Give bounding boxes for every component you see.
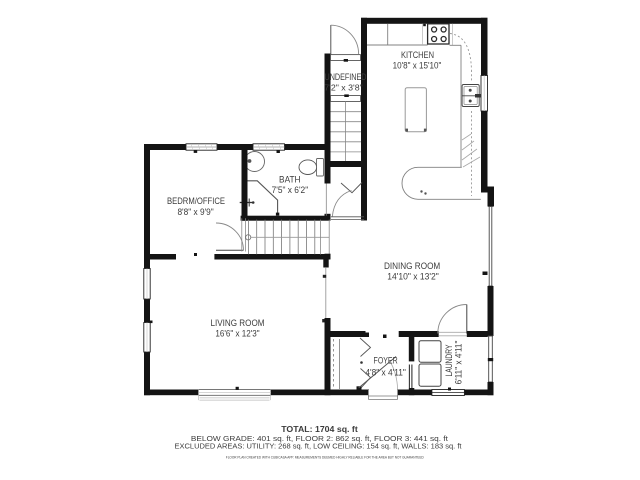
- svg-text:EXCLUDED AREAS: UTILITY: 268 s: EXCLUDED AREAS: UTILITY: 268 sq. ft, LOW…: [175, 442, 463, 451]
- svg-text:7'2" x 3'8": 7'2" x 3'8": [324, 82, 363, 92]
- svg-text:UNDEFINED: UNDEFINED: [325, 72, 367, 82]
- svg-text:6'11" x 4'11": 6'11" x 4'11": [454, 341, 464, 385]
- svg-text:4'8" x 4'11": 4'8" x 4'11": [365, 367, 406, 377]
- svg-text:16'6" x 12'3": 16'6" x 12'3": [215, 328, 259, 338]
- svg-text:KITCHEN: KITCHEN: [401, 50, 434, 60]
- svg-text:14'10" x 13'2": 14'10" x 13'2": [387, 272, 439, 282]
- svg-text:DINING ROOM: DINING ROOM: [384, 261, 440, 271]
- svg-text:7'5" x 6'2": 7'5" x 6'2": [272, 185, 309, 195]
- svg-text:LIVING ROOM: LIVING ROOM: [211, 318, 265, 328]
- svg-text:BEDRM/OFFICE: BEDRM/OFFICE: [167, 196, 225, 206]
- svg-text:FOYER: FOYER: [374, 356, 398, 366]
- svg-text:TOTAL: 1704 sq. ft: TOTAL: 1704 sq. ft: [281, 425, 358, 434]
- svg-text:LAUNDRY: LAUNDRY: [444, 345, 454, 377]
- svg-text:8'8" x 9'9": 8'8" x 9'9": [177, 207, 213, 217]
- svg-text:BATH: BATH: [279, 174, 301, 184]
- svg-text:10'8" x 15'10": 10'8" x 15'10": [393, 61, 442, 71]
- svg-text:FLOOR PLAN CREATED WITH CUBICA: FLOOR PLAN CREATED WITH CUBICASA APP. ME…: [226, 456, 424, 460]
